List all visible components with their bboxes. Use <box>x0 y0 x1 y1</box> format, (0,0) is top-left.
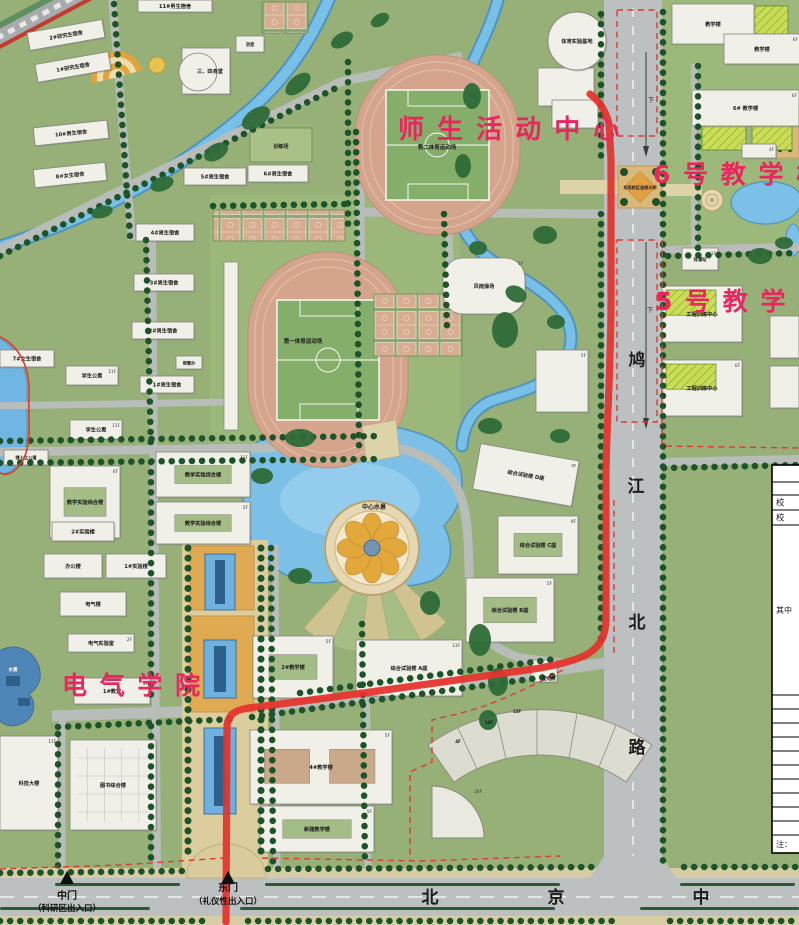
label-building-6: 6 号 教 学 楼 <box>653 160 799 189</box>
building-floors: 4F <box>769 147 775 152</box>
building: 11#男生宿舍 <box>138 0 214 14</box>
round-plaza <box>149 57 165 73</box>
building-floors: 5F <box>547 581 553 586</box>
building-label: 1#男生宿舍 <box>153 381 183 389</box>
building-label: 学生公寓 <box>86 426 107 434</box>
building: 26F <box>432 786 484 838</box>
building-label: 1#实验楼 <box>124 562 148 570</box>
basketball-courts-c <box>262 2 308 33</box>
building-label: 浴室 <box>246 41 255 48</box>
east-gate-name: 东门 <box>218 881 238 894</box>
area-label: 第一体育运动场 <box>284 337 323 345</box>
building-floors: 11F <box>112 423 120 428</box>
building: 7#女生宿舍 <box>0 350 56 369</box>
area-label: 4F <box>455 739 461 744</box>
building-label: 教学楼 <box>753 45 770 53</box>
building-label: 科技大楼 <box>19 779 41 787</box>
label-building-5: 5 号 教 学 楼 <box>655 287 799 316</box>
building-label: 综合试验楼 B座 <box>492 606 530 614</box>
lane-hint: 下 <box>647 306 654 314</box>
campus-map: 2#研究生宿舍1#研究生宿舍10#男生宿舍8#女生宿舍11#男生宿舍5#男生宿舍… <box>0 0 799 925</box>
building-label: 2#实验楼 <box>71 528 95 536</box>
building-label: 5#男生宿舍 <box>201 173 231 181</box>
area-label: 中心水景 <box>362 503 386 511</box>
building-label: 6# 教学楼 <box>733 104 759 112</box>
building: 排灌站1F <box>682 248 720 272</box>
building <box>770 316 799 360</box>
building-label: 4#男生宿舍 <box>151 229 181 237</box>
building-label: 办公楼 <box>65 562 81 570</box>
area-label: 水景 <box>9 666 18 673</box>
legend-row-label: 注： <box>776 839 792 849</box>
building: 5#男生宿舍 <box>184 168 248 187</box>
lane-hint: 下 <box>648 96 655 104</box>
east-gate-sub: （礼仪性出入口） <box>194 896 262 907</box>
building <box>770 366 799 410</box>
lake-bridge <box>362 420 400 462</box>
building-label: 11#男生宿舍 <box>159 2 192 10</box>
building-label: 2#男生宿舍 <box>149 327 179 335</box>
bottom-road-name-char: 北 <box>422 888 439 908</box>
building: 三、四食堂 <box>179 48 232 96</box>
label-activity-center: 师 生 活 动 中 心 <box>398 115 621 145</box>
building-floors: 13F <box>452 643 460 648</box>
grandstand <box>224 262 238 430</box>
middle-gate-sub: （科研区出入口） <box>33 903 101 914</box>
legend-row-label: 其中 <box>776 605 792 615</box>
area-label: 训练场 <box>273 143 288 150</box>
pond-deck <box>18 698 30 706</box>
building-label: 宿管办 <box>183 360 196 367</box>
building: 教学楼6F <box>724 34 799 66</box>
map-canvas: 2#研究生宿舍1#研究生宿舍10#男生宿舍8#女生宿舍11#男生宿舍5#男生宿舍… <box>0 0 799 925</box>
area-label: 配电房 <box>542 675 556 682</box>
building-label: 电气实验室 <box>88 639 114 647</box>
building: 工程训练中心6F <box>662 360 744 418</box>
road-ne-cross-2 <box>662 459 799 462</box>
road-dorm-cross <box>0 402 230 406</box>
building: 浴室 <box>236 36 266 54</box>
building: 科技大楼11F <box>0 736 60 832</box>
area-label: 13F <box>485 720 494 725</box>
building-label: 7#女生宿舍 <box>13 355 43 363</box>
bottom-road-name-char: 中 <box>693 887 710 908</box>
vertical-road-name-char: 路 <box>629 737 647 758</box>
building-floors: 5F <box>326 639 332 644</box>
building-floors: 6F <box>793 37 799 42</box>
building-label: 教学实验综合楼 <box>184 519 222 527</box>
vertical-road-name-char: 北 <box>629 613 646 633</box>
building: 教学实验综合楼5F <box>156 502 252 546</box>
middle-gate-name: 中门 <box>57 889 77 902</box>
building: 电气实验室2F <box>68 634 136 654</box>
building-floors: 5F <box>581 353 587 358</box>
building-label: 工程训练中心 <box>686 384 718 392</box>
area-label: 15F <box>513 709 522 714</box>
building: 电气楼 <box>60 592 128 618</box>
building-label: 教学楼 <box>704 20 721 28</box>
building-label: 6#男生宿舍 <box>264 170 294 178</box>
building: 学生公寓11F <box>66 366 120 387</box>
building: 学生公寓11F <box>70 420 124 441</box>
building: 6# 教学楼6F <box>692 90 799 128</box>
building-label: 4#教学楼 <box>309 763 333 771</box>
building: 2#男生宿舍 <box>132 322 196 341</box>
basketball-courts-a <box>213 210 345 241</box>
building: 2#实验楼 <box>52 522 116 543</box>
building-floors: 5F <box>367 809 373 814</box>
building-label: 体育实验基地 <box>561 37 593 45</box>
building-label: 新建教学楼 <box>304 825 331 833</box>
building-floors: 1F <box>518 261 524 266</box>
building-label: 风雨操场 <box>474 282 495 290</box>
building: 4F <box>742 144 778 160</box>
building: 综合试验楼 C座9F <box>498 516 580 576</box>
building-label: 图书综合楼 <box>100 781 127 789</box>
building-floors: 5F <box>385 733 391 738</box>
building-label: 学生公寓 <box>82 372 103 380</box>
building: 办公楼 <box>44 554 104 580</box>
building: 新建教学楼5F <box>260 806 376 854</box>
building-label: 三、四食堂 <box>197 67 223 75</box>
building-label: 综合试验楼 A座 <box>391 664 429 672</box>
building: 1#实验楼 <box>106 554 168 580</box>
building-label: 综合试验楼 C座 <box>520 541 558 549</box>
building-label: 教学实验综合楼 <box>66 498 104 506</box>
building-floors: 26F <box>474 789 482 794</box>
label-electrical-college: 电 气 学 院 <box>62 671 202 700</box>
building: 3#男生宿舍 <box>134 274 196 293</box>
building-floors: 5F <box>243 505 249 510</box>
building: 6#男生宿舍 <box>248 165 310 184</box>
building: 5F <box>536 350 590 414</box>
pond-deck <box>6 676 20 686</box>
building: 图书综合楼6F <box>70 740 158 832</box>
building-floors: 6F <box>735 363 741 368</box>
building: 宿管办 <box>176 356 204 371</box>
vertical-road-name-char: 鸠 <box>629 350 646 371</box>
building-floors: 2F <box>127 637 133 642</box>
legend-row-label: 校 <box>776 513 785 524</box>
bottom-road-name-char: 京 <box>548 887 565 908</box>
building-label: 3#男生宿舍 <box>150 279 180 287</box>
vertical-road-name-char: 江 <box>628 477 645 497</box>
legend-table: 校校其中注： <box>772 465 799 853</box>
building-label: 教学实验综合楼 <box>184 471 222 479</box>
building-floors: 6F <box>792 93 798 98</box>
building-floors: 6F <box>113 469 119 474</box>
building-floors: 9F <box>571 519 577 524</box>
building-label: 电气楼 <box>85 600 101 608</box>
legend-row-label: 校 <box>776 498 785 509</box>
building-floors: 11F <box>108 369 116 374</box>
building-label: 2#教学楼 <box>281 663 305 671</box>
